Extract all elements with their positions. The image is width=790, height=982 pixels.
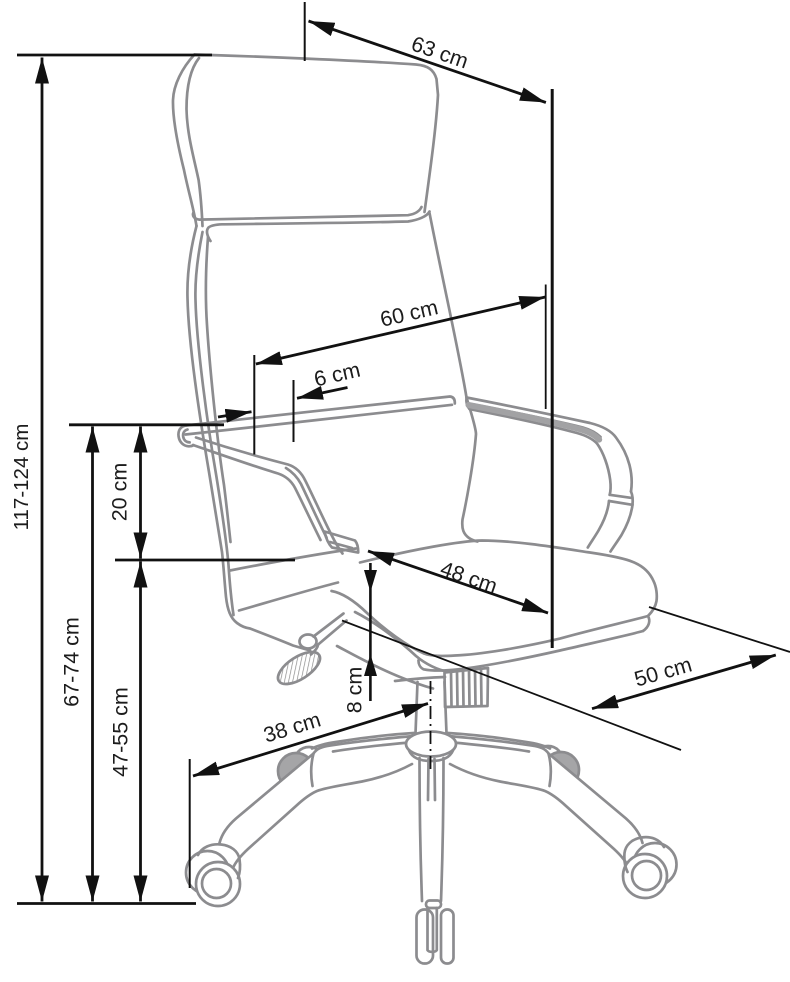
svg-text:117-124 cm: 117-124 cm bbox=[10, 424, 33, 531]
svg-text:47-55 cm: 47-55 cm bbox=[109, 687, 133, 777]
svg-text:8 cm: 8 cm bbox=[343, 667, 367, 714]
svg-text:67-74 cm: 67-74 cm bbox=[60, 617, 84, 707]
svg-text:20 cm: 20 cm bbox=[108, 463, 132, 522]
